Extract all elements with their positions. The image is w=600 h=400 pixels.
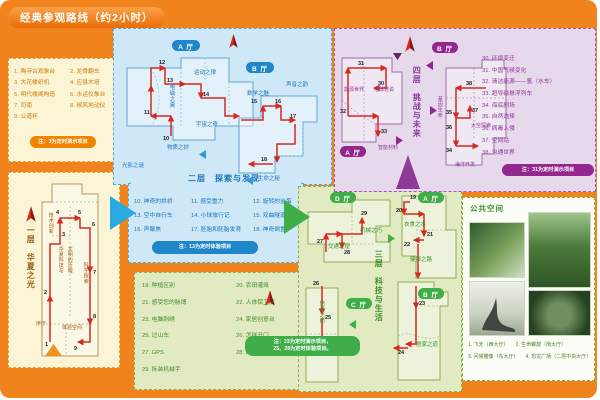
legend-item: 9. 公道杯 bbox=[14, 115, 70, 121]
waypoint-number: 20 bbox=[396, 208, 402, 214]
legend-item: 5. 明代楼阁构造 bbox=[14, 93, 70, 99]
floor2-note: 注：13为定时体验项目 bbox=[152, 241, 258, 254]
hall-pill-a: A 厅 bbox=[418, 192, 444, 203]
north-compass-icon bbox=[25, 206, 37, 228]
legend-item: 27. GPS bbox=[142, 351, 236, 357]
floor2-map: 10 11 12 13 14 15 16 17 18 bbox=[113, 28, 332, 185]
north-compass-icon bbox=[404, 36, 416, 58]
photo-dinosaur bbox=[469, 281, 525, 336]
area-label-jujia: 居家之道 bbox=[416, 342, 438, 348]
legend-item: 6. 水运仪象台 bbox=[70, 93, 114, 99]
floor2-legend: 10. 神奇的拱桥11. 感受重力12. 旋转的金蛋13. 空中自行车14. 小… bbox=[134, 200, 302, 233]
waypoint-number: 21 bbox=[427, 232, 433, 238]
legend-item: 13. 空中自行车 bbox=[134, 214, 191, 220]
waypoint-number: 5 bbox=[78, 210, 81, 216]
legend-item: 32. 清洁能源——氢（水车） bbox=[482, 80, 594, 86]
waypoint-number: 1 bbox=[45, 342, 48, 348]
public-space-captions-row2: 3. 问候雕像（东大厅） 4. 恐龙广场（二层中央大厅） bbox=[468, 353, 591, 360]
waypoint-number: 8 bbox=[93, 314, 96, 320]
hall-pill-a: A 厅 bbox=[340, 146, 366, 157]
floor1-note-text: 注：3为定时演示项目 bbox=[38, 139, 88, 146]
legend-item: 21. 感受您的脉搏 bbox=[142, 301, 236, 307]
hall-label: A 厅 bbox=[178, 41, 194, 51]
waypoint-number: 15 bbox=[251, 99, 257, 105]
area-label-kexue: 科学探索 bbox=[82, 262, 88, 290]
floor3-title: 三层 科技与生活 bbox=[374, 250, 383, 350]
waypoint-number: 14 bbox=[203, 92, 210, 98]
area-label-diqiu: 地球述说 bbox=[374, 88, 394, 94]
floor3-legend: 19. 种植区别20. 农田灌溉21. 感受您的脉搏22. 人体保卫战23. 电… bbox=[142, 284, 324, 374]
waypoint-number: 27 bbox=[317, 239, 323, 245]
hall-label: A 厅 bbox=[423, 193, 439, 203]
page-title-banner: 经典参观路线（约2小时） bbox=[8, 7, 165, 28]
legend-item: 17. 胚胎和胚胎发育 bbox=[191, 228, 253, 234]
legend-item: 18. 神奇倒置 bbox=[253, 228, 302, 234]
area-label-shengyin: 声音之韵 bbox=[286, 82, 308, 88]
hall-label: A 厅 bbox=[345, 147, 361, 157]
area-label-shengming: 生命之秘 bbox=[258, 176, 280, 182]
area-label-shuxue: 数学之魅 bbox=[247, 91, 269, 97]
floor4-note-text: 注：31为定时演示项目 bbox=[522, 167, 574, 174]
area-label-center2: 文明的历程 bbox=[66, 246, 72, 282]
floor4-note: 注：31为定时演示项目 bbox=[502, 164, 594, 176]
legend-item: 12. 旋转的金蛋 bbox=[253, 200, 302, 206]
legend-item: 11. 感受重力 bbox=[191, 200, 253, 206]
caption: 4. 恐龙广场（二层中央大厅） bbox=[526, 353, 592, 360]
floor1-title: 一层 华夏之光 bbox=[26, 226, 35, 298]
legend-item: 1. 陶寺古观象台 bbox=[14, 70, 70, 76]
page-title: 经典参观路线（约2小时） bbox=[20, 10, 153, 25]
floor3-note-line2: 25、28为定时体验项目。 bbox=[273, 346, 331, 353]
waypoint-number: 32 bbox=[340, 109, 346, 115]
dinosaur-silhouette bbox=[470, 282, 526, 337]
floor4-title: 四层 挑战与未来 bbox=[412, 66, 421, 174]
caption: 1. 飞天（西大厅） bbox=[468, 341, 509, 348]
legend-item: 4. 应县木塔 bbox=[70, 81, 114, 87]
hall-label: D 厅 bbox=[335, 193, 351, 203]
waypoint-number: 7 bbox=[93, 270, 96, 276]
floor3-note-line1: 注：23为定时演示项目， bbox=[274, 339, 332, 346]
area-label-jixie: 机械之巧 bbox=[360, 228, 382, 234]
legend-item: 20. 农田灌溉 bbox=[236, 284, 324, 290]
floor1-map: 1 2 3 4 5 6 7 8 9 bbox=[36, 176, 114, 364]
waypoint-number: 2 bbox=[44, 290, 47, 296]
area-label-jiankang: 健康之路 bbox=[410, 257, 432, 263]
legend-item: 7. 司南 bbox=[14, 104, 70, 110]
floor4-legend: 30. 环境变迁31. 中国气候变化32. 清洁能源——氢（水车）33. 超导磁… bbox=[482, 57, 594, 156]
floor1-note: 注：3为定时演示项目 bbox=[30, 136, 96, 148]
waypoint-number: 29 bbox=[361, 211, 367, 217]
legend-item: 33. 超导磁悬浮列车 bbox=[482, 92, 594, 98]
area-label-yishi: 衣食之本 bbox=[404, 222, 426, 228]
legend-item: 3. 大花楼织机 bbox=[14, 81, 70, 87]
legend-item: 35. 自然选择 bbox=[482, 115, 594, 121]
area-label-jiyin: 基因生命 bbox=[436, 96, 442, 124]
legend-item: 38. 沟通世界 bbox=[482, 151, 594, 157]
floor3-note: 注：23为定时演示项目， 25、28为定时体验项目。 bbox=[245, 336, 360, 356]
waypoint-number: 12 bbox=[159, 60, 165, 66]
waypoint-number: 24 bbox=[398, 350, 405, 356]
legend-item: 2. 龙骨翻车 bbox=[70, 70, 114, 76]
area-label-tiyan: 体验空间 bbox=[62, 326, 82, 332]
legend-item: 37. 空间站 bbox=[482, 139, 594, 145]
waypoint-number: 34 bbox=[446, 148, 453, 154]
legend-item: 10. 神奇的拱桥 bbox=[134, 200, 191, 206]
legend-item: 19. 种植区别 bbox=[142, 284, 236, 290]
area-label-yundong: 运动之律 bbox=[194, 70, 216, 76]
hall-label: B 厅 bbox=[252, 63, 268, 73]
waypoint-number: 11 bbox=[144, 110, 150, 116]
hall-pill-b: B 厅 bbox=[432, 42, 458, 53]
area-label-cailiao: 智能材料 bbox=[378, 146, 398, 152]
waypoint-number: 31 bbox=[358, 61, 364, 67]
area-label-yuzhou: 宇宙之奇 bbox=[196, 122, 218, 128]
legend-item: 31. 中国气候变化 bbox=[482, 69, 594, 75]
floor2-note-text: 注：13为定时体验项目 bbox=[179, 244, 231, 251]
hall-pill-b: B 厅 bbox=[246, 62, 274, 73]
hall-pill-d: D 厅 bbox=[330, 192, 356, 203]
hall-label: B 厅 bbox=[423, 289, 439, 299]
waypoint-number: 9 bbox=[74, 346, 77, 352]
area-label-haiyang: 海洋开发 bbox=[455, 163, 475, 169]
legend-item: 24. 家居创意台 bbox=[236, 318, 324, 324]
waypoint-number: 16 bbox=[275, 99, 281, 105]
area-label-center1: 华夏科技与 bbox=[57, 246, 63, 282]
caption: 2. 生命螺旋（南大厅） bbox=[516, 341, 567, 348]
caption: 3. 问候雕像（东大厅） bbox=[468, 353, 519, 360]
waypoint-number: 36 bbox=[446, 125, 452, 131]
area-label-nengyuan: 能源世界 bbox=[344, 88, 364, 94]
waypoint-number: 37 bbox=[472, 108, 478, 114]
photo-ceiling-art bbox=[469, 222, 525, 278]
legend-item: 16. 声聚焦 bbox=[134, 228, 191, 234]
north-compass-icon bbox=[228, 34, 239, 54]
legend-item: 22. 人体保卫战 bbox=[236, 301, 324, 307]
legend-item: 36. 病毒入侵 bbox=[482, 127, 594, 133]
waypoint-number: 22 bbox=[404, 242, 410, 248]
waypoint-number: 33 bbox=[381, 129, 387, 135]
hall-label: C 厅 bbox=[351, 299, 367, 309]
hall-pill-a: A 厅 bbox=[172, 40, 200, 51]
area-label-xu: 序厅 bbox=[36, 322, 46, 328]
photo-gear-wall bbox=[528, 290, 591, 336]
legend-item: 23. 电脑刺绣 bbox=[142, 318, 236, 324]
legend-item: 14. 小球旅行记 bbox=[191, 214, 253, 220]
waypoint-number: 6 bbox=[92, 222, 95, 228]
floor1-legend: 1. 陶寺古观象台2. 龙骨翻车3. 大花楼织机4. 应县木塔5. 明代楼阁构造… bbox=[14, 70, 116, 121]
public-space-title: 公共空间 bbox=[470, 205, 504, 214]
area-label-guangying: 光影之谜 bbox=[122, 163, 144, 169]
area-label-wuzhi: 物质之妙 bbox=[167, 145, 189, 151]
route-map-page: 经典参观路线（约2小时） 1. 陶寺古观象台2. 龙骨翻车3. 大花楼织机4. … bbox=[0, 0, 600, 400]
waypoint-number: 18 bbox=[261, 157, 267, 163]
waypoint-number: 3 bbox=[62, 232, 65, 238]
area-label-jishu: 技术创新 bbox=[47, 212, 53, 240]
legend-item: 34. 海底剧场 bbox=[482, 104, 594, 110]
area-label-jiaotong: 交通之便 bbox=[328, 244, 350, 250]
waypoint-number: 35 bbox=[446, 110, 452, 116]
photo-life-spiral bbox=[528, 212, 591, 288]
waypoint-number: 28 bbox=[344, 250, 350, 256]
legend-item: 30. 环境变迁 bbox=[482, 57, 594, 63]
north-compass-icon bbox=[264, 290, 276, 312]
public-space-captions-row1: 1. 飞天（西大厅） 2. 生命螺旋（南大厅） bbox=[468, 341, 566, 348]
legend-item: 29. 拆装机械手 bbox=[142, 368, 236, 374]
waypoint-number: 19 bbox=[410, 195, 416, 201]
area-label-dianci: 电磁之奥 bbox=[168, 84, 174, 112]
hall-pill-b: B 厅 bbox=[418, 288, 444, 299]
legend-item: 25. 过山车 bbox=[142, 334, 236, 340]
waypoint-number: 38 bbox=[466, 81, 472, 87]
legend-item: 8. 候风地动仪 bbox=[70, 104, 114, 110]
hall-label: B 厅 bbox=[437, 43, 453, 53]
waypoint-number: 23 bbox=[419, 301, 425, 307]
waypoint-number: 17 bbox=[290, 114, 296, 120]
waypoint-number: 10 bbox=[163, 136, 169, 142]
hall-pill-c: C 厅 bbox=[346, 298, 372, 309]
waypoint-number: 25 bbox=[325, 315, 331, 321]
